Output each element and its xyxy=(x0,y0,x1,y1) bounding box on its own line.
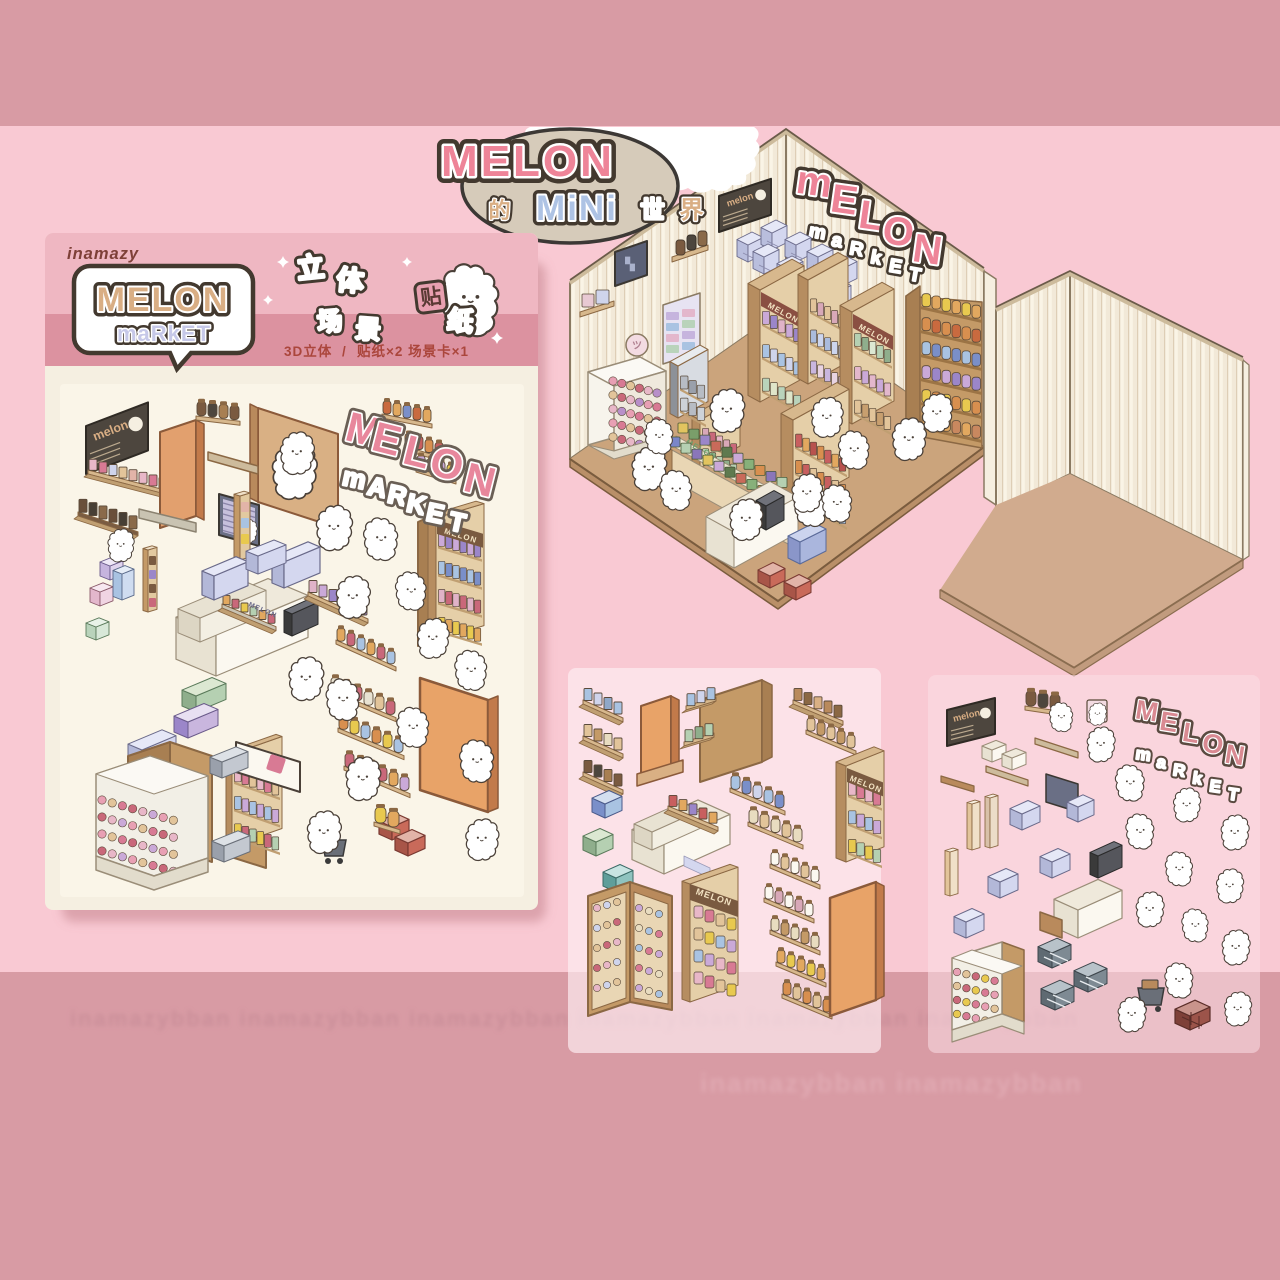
svg-text:立: 立 xyxy=(295,251,326,285)
svg-text:贴纸×2 场景卡×1: 贴纸×2 场景卡×1 xyxy=(357,343,469,359)
svg-text:inamazybban inamazybban: inamazybban inamazybban xyxy=(700,1068,1083,1098)
svg-text:M: M xyxy=(1133,694,1161,727)
svg-text:R: R xyxy=(1172,760,1188,781)
svg-text:inamazy: inamazy xyxy=(67,245,139,263)
svg-text:的: 的 xyxy=(488,198,511,223)
svg-text:场: 场 xyxy=(316,307,344,337)
svg-text:体: 体 xyxy=(336,265,367,297)
svg-text:MELON: MELON xyxy=(97,281,230,319)
svg-text:贴: 贴 xyxy=(419,284,443,310)
svg-text:m: m xyxy=(1134,744,1153,765)
svg-text:景: 景 xyxy=(355,315,383,345)
svg-text:E: E xyxy=(1208,776,1223,797)
svg-text:MiNi: MiNi xyxy=(536,189,618,228)
svg-text:maRkET: maRkET xyxy=(117,321,211,346)
svg-text:纸: 纸 xyxy=(446,305,476,338)
svg-text:MELON: MELON xyxy=(441,137,615,186)
svg-text:m: m xyxy=(794,158,836,207)
svg-text:3D立体: 3D立体 xyxy=(284,343,332,359)
svg-text:ツ: ツ xyxy=(632,340,642,352)
svg-text:/: / xyxy=(342,344,346,359)
svg-text:界: 界 xyxy=(680,197,705,224)
svg-text:世: 世 xyxy=(641,197,666,224)
svg-text:▚: ▚ xyxy=(624,256,635,272)
svg-text:O: O xyxy=(1200,728,1226,761)
